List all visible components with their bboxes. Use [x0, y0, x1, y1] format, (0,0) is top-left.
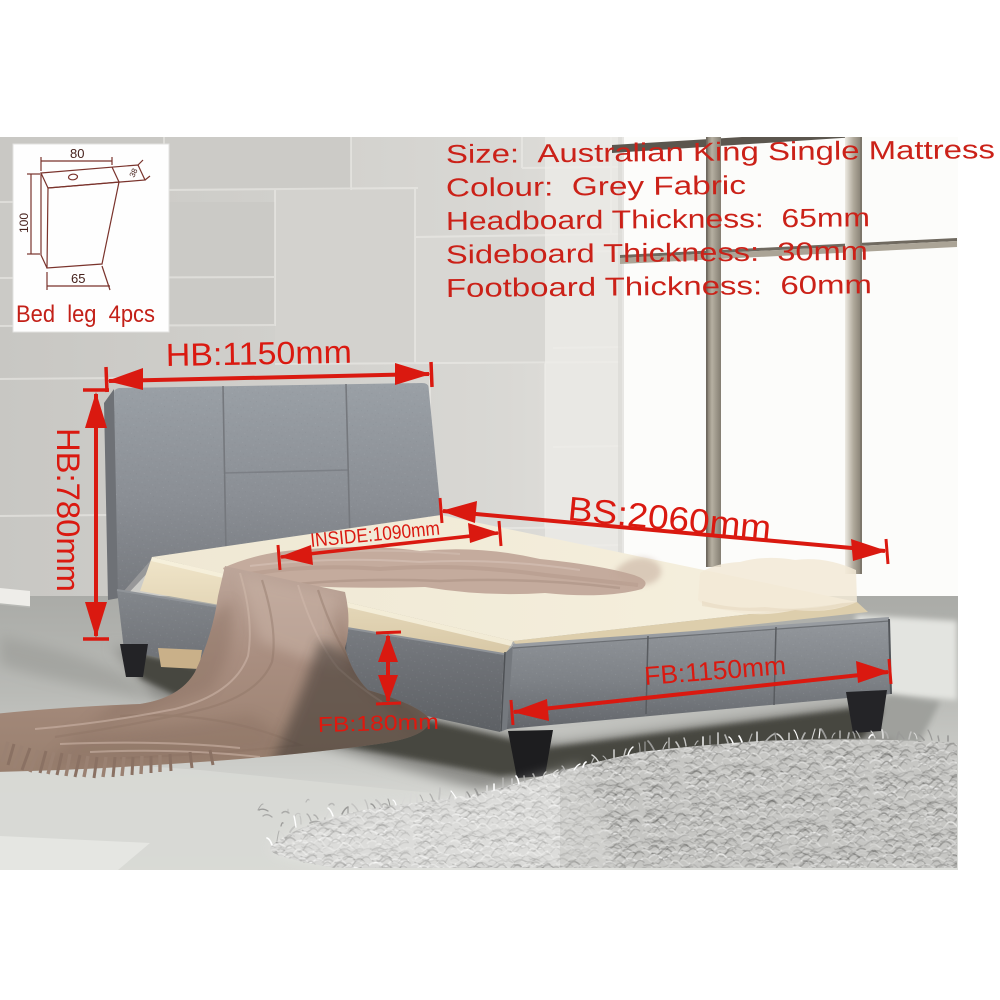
svg-text:80: 80 [70, 146, 84, 161]
svg-text:Footboard Thickness: 60mm: Footboard Thickness: 60mm [446, 269, 872, 303]
svg-text:FB:180mm: FB:180mm [318, 710, 440, 737]
svg-text:65: 65 [71, 271, 85, 286]
svg-text:Bed leg 4pcs: Bed leg 4pcs [16, 301, 155, 328]
svg-text:Headboard Thickness: 65mm: Headboard Thickness: 65mm [446, 202, 870, 236]
svg-text:Sideboard Thickness: 30mm: Sideboard Thickness: 30mm [446, 236, 868, 270]
svg-text:Size: Australian King Single: Size: Australian King Single Mattress [446, 134, 995, 169]
svg-text:Colour: Grey Fabric: Colour: Grey Fabric [446, 170, 746, 203]
svg-text:HB:1150mm: HB:1150mm [165, 334, 352, 373]
svg-text:HB:780mm: HB:780mm [50, 428, 86, 592]
svg-text:100: 100 [17, 213, 31, 233]
